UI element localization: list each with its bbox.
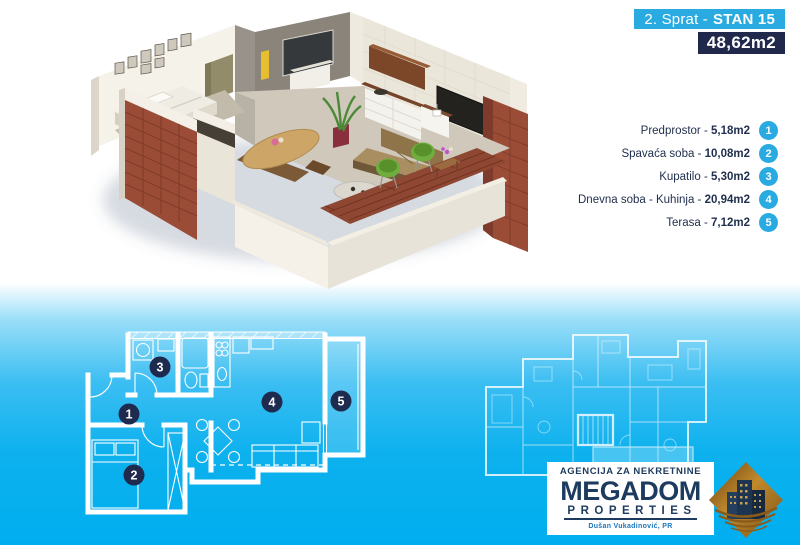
logo-brand-name: MEGADOM — [560, 478, 701, 505]
room-name: Dnevna soba - Kuhinja — [578, 194, 694, 206]
megadom-logo: AGENCIJA ZA NEKRETNINE MEGADOM PROPERTIE… — [547, 462, 714, 535]
list-item: Dnevna soba - Kuhinja - 20,94m2 4 — [578, 191, 778, 208]
flyer-page: 2. Sprat - STAN 15 48,62m2 Predprostor -… — [0, 0, 800, 545]
room-name: Predprostor — [641, 125, 701, 137]
kitchen-fixtures — [214, 337, 273, 387]
svg-text:2: 2 — [131, 469, 138, 483]
bathroom-fixtures — [133, 338, 208, 388]
logo-brand-sub: PROPERTIES — [564, 506, 696, 521]
apartment-3d-render — [85, 0, 535, 300]
floor-label: 2. Sprat - — [644, 11, 708, 28]
separator: - — [694, 148, 704, 160]
room-number-badge: 1 — [759, 121, 778, 140]
list-item: Kupatilo - 5,30m2 3 — [659, 168, 778, 185]
dining-set — [197, 420, 240, 463]
floor-unit-banner: 2. Sprat - STAN 15 — [634, 9, 785, 29]
room-area: 5,30m2 — [711, 171, 750, 183]
room-name: Kupatilo — [659, 171, 701, 183]
logo-owner-line: Dušan Vukadinović, PR — [588, 523, 672, 530]
svg-text:3: 3 — [157, 361, 164, 375]
separator: - — [701, 125, 711, 137]
plan-number-markers: 1 2 3 4 5 — [119, 357, 352, 486]
room-name: Spavaća soba — [621, 148, 694, 160]
svg-text:5: 5 — [338, 395, 345, 409]
room-number-badge: 4 — [759, 190, 778, 209]
megadom-diamond-icon — [707, 460, 785, 540]
room-area: 10,08m2 — [705, 148, 750, 160]
room-area: 5,18m2 — [711, 125, 750, 137]
room-area: 20,94m2 — [705, 194, 750, 206]
svg-text:1: 1 — [126, 408, 133, 422]
separator: - — [701, 171, 711, 183]
sofa — [252, 422, 320, 467]
unit-label: STAN 15 — [713, 11, 775, 28]
separator: - — [694, 194, 704, 206]
list-item: Spavaća soba - 10,08m2 2 — [621, 145, 778, 162]
total-area-badge: 48,62m2 — [698, 32, 785, 54]
separator: - — [701, 217, 711, 229]
unit-floor-plan-2d: 1 2 3 4 5 — [78, 322, 373, 545]
list-item: Predprostor - 5,18m2 1 — [641, 122, 778, 139]
room-number-badge: 5 — [759, 213, 778, 232]
room-name: Terasa — [666, 217, 701, 229]
list-item: Terasa - 7,12m2 5 — [666, 214, 778, 231]
room-number-badge: 3 — [759, 167, 778, 186]
room-area-list: Predprostor - 5,18m2 1 Spavaća soba - 10… — [578, 122, 778, 231]
room-number-badge: 2 — [759, 144, 778, 163]
room-area: 7,12m2 — [711, 217, 750, 229]
svg-text:4: 4 — [269, 396, 276, 410]
